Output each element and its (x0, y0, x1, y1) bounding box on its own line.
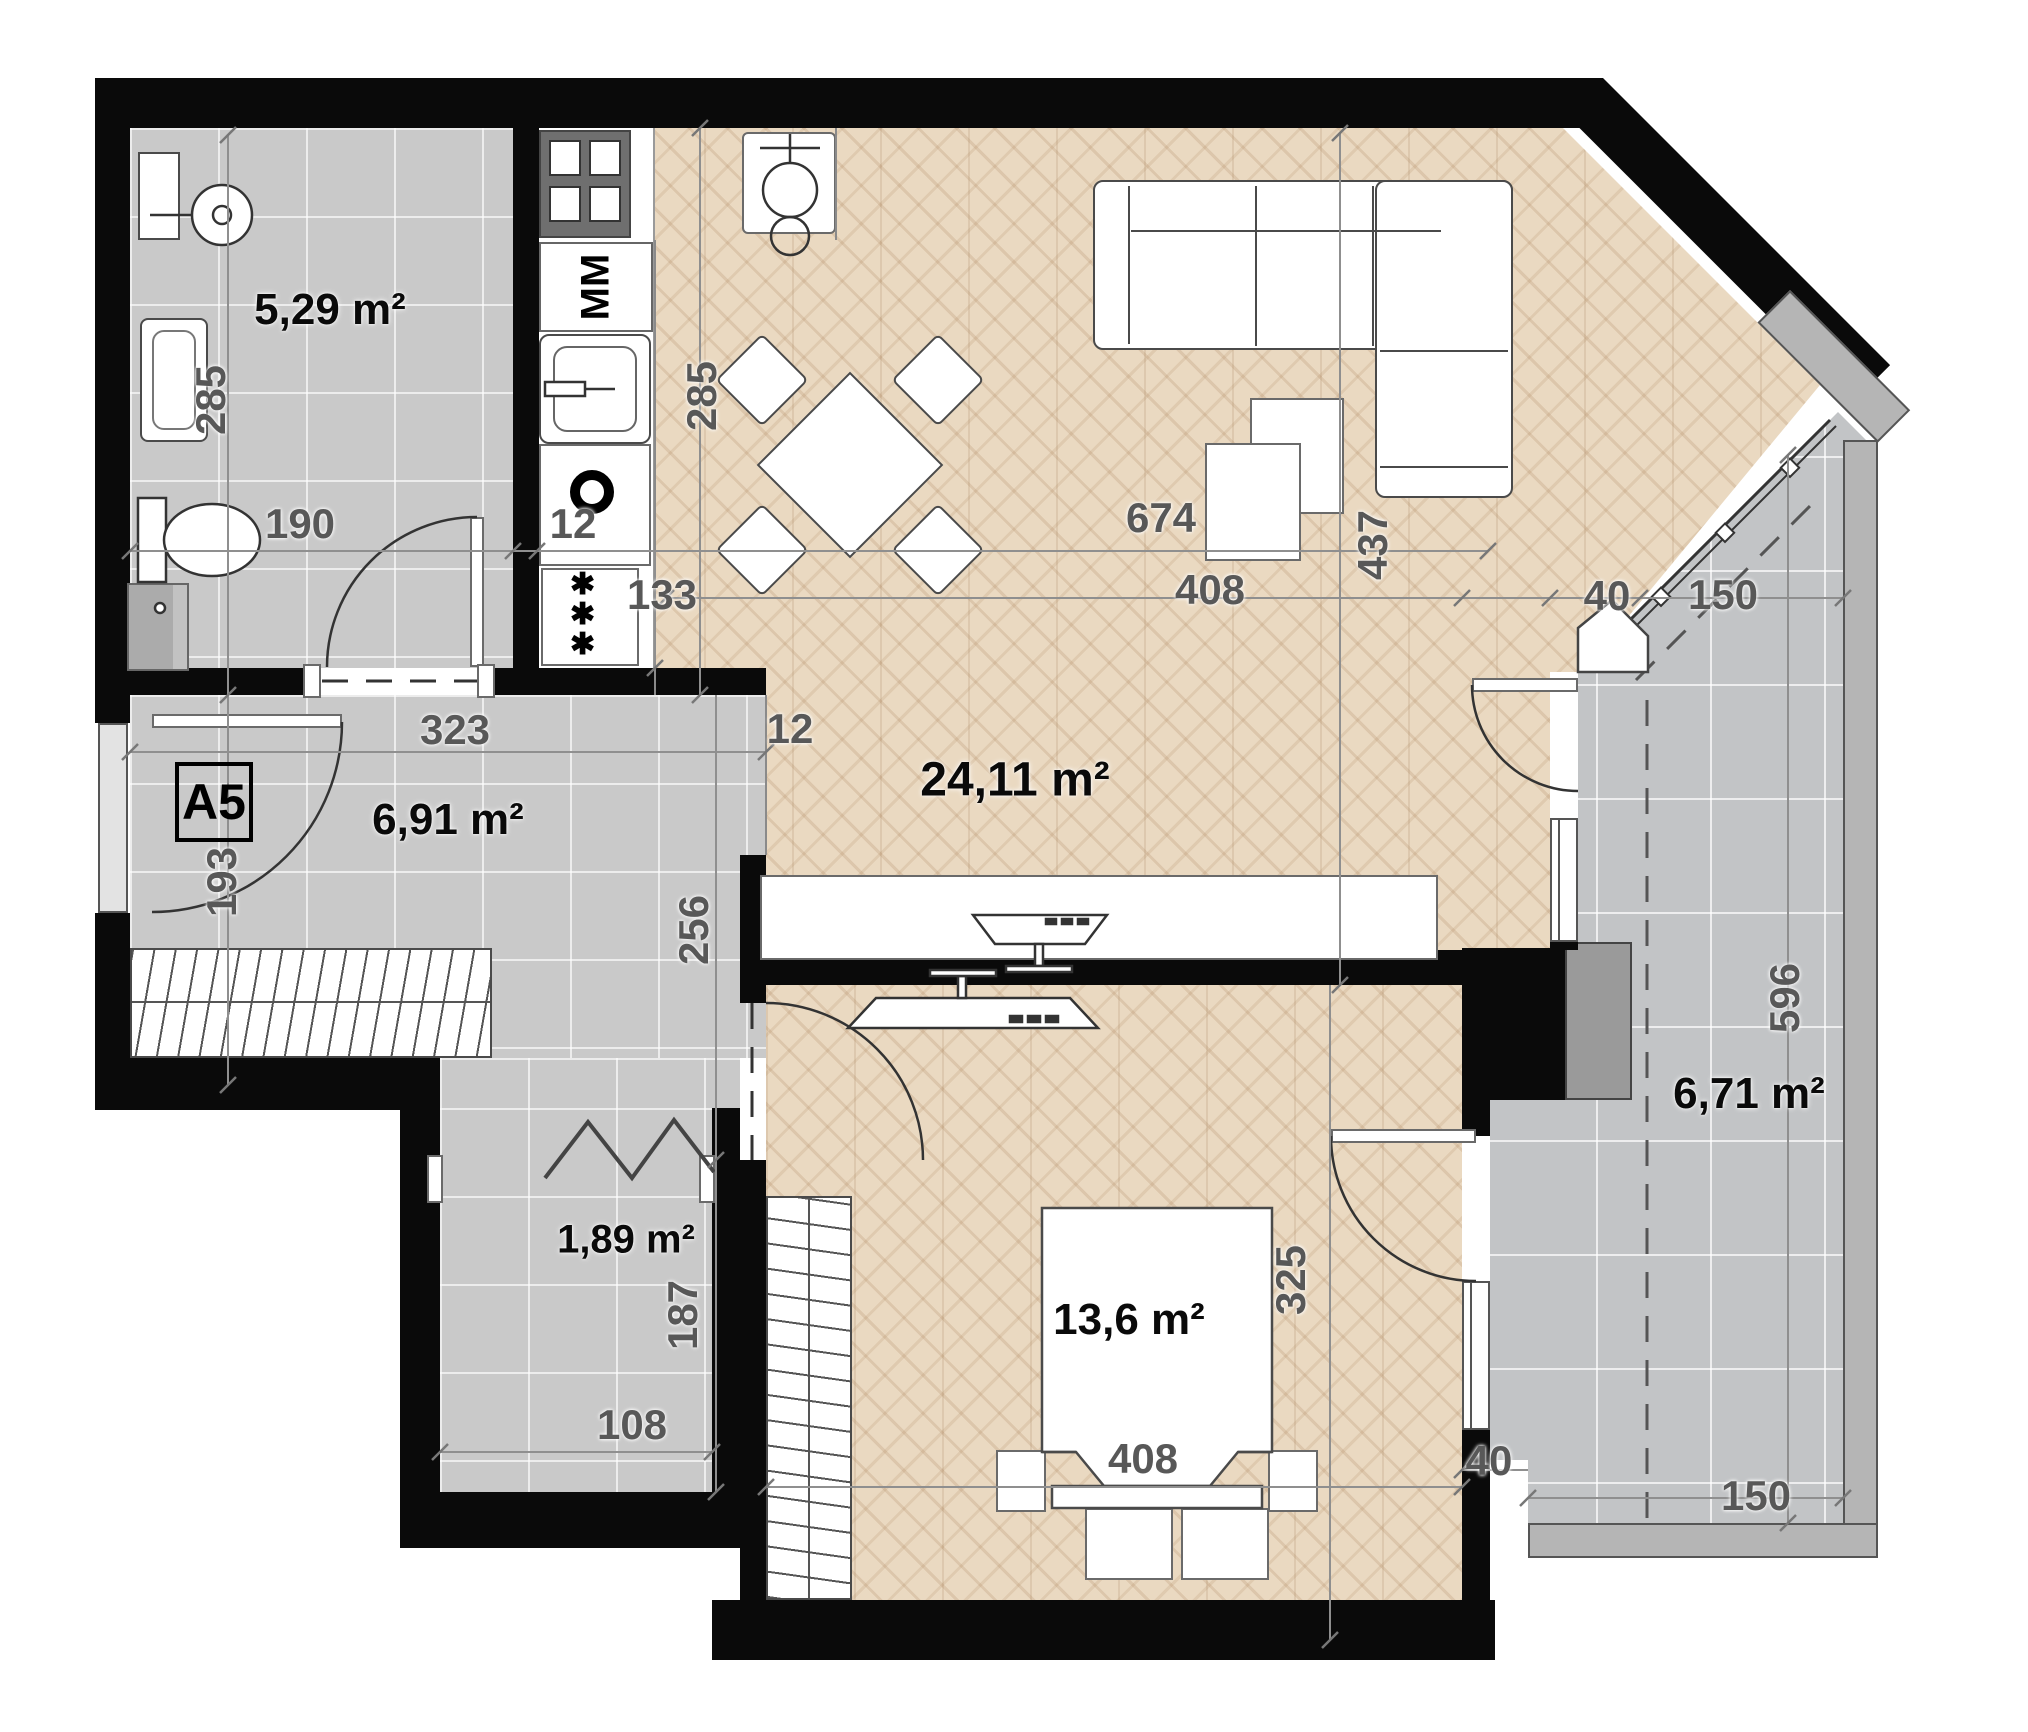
dim-balcony-height: 596 (1761, 963, 1809, 1033)
bathroom-area-label: 5,29 m² (254, 285, 406, 335)
dim-hall-height: 193 (198, 847, 246, 917)
hall-area-label: 6,91 m² (372, 795, 524, 845)
dim-kitchen-width: 133 (627, 571, 697, 619)
dim-total-width: 674 (1126, 494, 1196, 542)
kitchen-top-sink-bowls (760, 134, 820, 255)
tv-living-icon (973, 915, 1107, 972)
dim-hall-width: 323 (420, 706, 490, 754)
dimension-lines (130, 128, 1843, 1640)
dim-storage-height: 187 (659, 1280, 707, 1350)
dim-storage-width: 108 (597, 1401, 667, 1449)
dimension-ticks (122, 120, 1851, 1648)
dim-kitchen-wall: 12 (550, 500, 597, 548)
door-arcs (152, 517, 1578, 1281)
diagonal-glazing (1578, 420, 1836, 672)
dim-window-diag: 150 (1688, 571, 1758, 619)
storage-folding-door (545, 1120, 714, 1178)
living-area-label: 24,11 m² (920, 753, 1109, 808)
bath-door-arc (327, 517, 477, 667)
dim-bedroom-corner: 40 (1466, 1437, 1513, 1485)
dim-bedroom-height: 325 (1267, 1245, 1315, 1315)
tv-bedroom-icon (848, 970, 1098, 1028)
dim-living-width: 408 (1175, 566, 1245, 614)
dim-hall-wall: 12 (767, 705, 814, 753)
dim-hall-right-height: 256 (670, 895, 718, 965)
dim-bath-height: 285 (187, 365, 235, 435)
bedroom-balcony-door-arc (1331, 1136, 1476, 1281)
storage-area-label: 1,89 m² (557, 1218, 695, 1263)
toilet-icon (138, 498, 260, 613)
kitchen-sink-faucet (545, 382, 615, 396)
dim-balcony-width: 150 (1721, 1472, 1791, 1520)
apartment-number: A5 (182, 773, 246, 831)
bedroom-area-label: 13,6 m² (1053, 1295, 1205, 1345)
floor-plan: MM ✱✱✱ (0, 0, 2028, 1732)
dim-corner-diag: 40 (1584, 572, 1631, 620)
dim-living-height: 437 (1349, 510, 1397, 580)
dim-bath-width: 190 (265, 500, 335, 548)
balcony-area-label: 6,71 m² (1673, 1069, 1825, 1119)
dim-kitchen-height: 285 (678, 361, 726, 431)
apartment-number-box: A5 (175, 762, 253, 842)
living-balcony-door-arc (1472, 685, 1578, 791)
shower-head-icon (150, 185, 252, 245)
dim-bedroom-width: 408 (1108, 1435, 1178, 1483)
